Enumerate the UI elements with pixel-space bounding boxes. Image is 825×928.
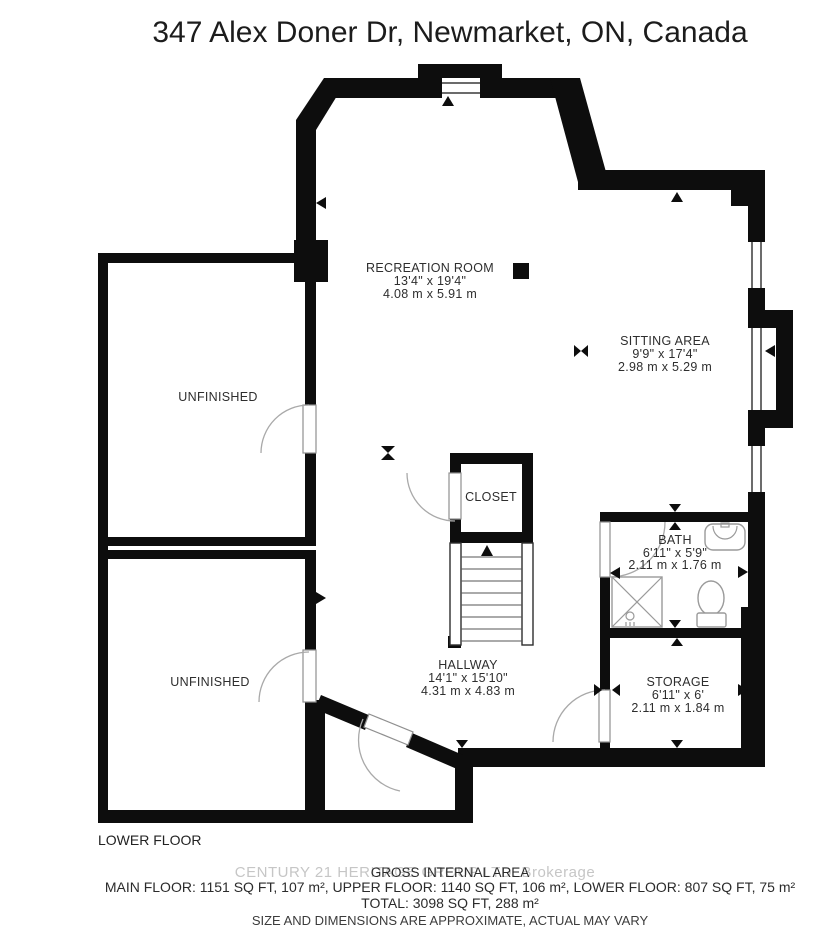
total-area-line: TOTAL: 3098 SQ FT, 288 m²: [361, 895, 539, 911]
marker-icon: [671, 638, 683, 646]
wall-segment: [305, 453, 316, 541]
door-icon-unfinished-lower: [259, 650, 316, 702]
room-dim-imperial: 14'1" x 15'10": [428, 671, 508, 685]
room-label-sitting: SITTING AREA: [620, 334, 710, 348]
room-dim-metric: 2.11 m x 1.84 m: [631, 701, 724, 715]
marker-icon: [671, 740, 683, 748]
marker-icon: [738, 566, 748, 578]
page-title: 347 Alex Doner Dr, Newmarket, ON, Canada: [152, 16, 748, 49]
bath-top-wall: [600, 512, 765, 522]
marker-icon: [669, 504, 681, 512]
marker-icon: [581, 345, 588, 357]
wall-chamfer-topright: [550, 78, 606, 182]
door-icon-unfinished-upper: [261, 405, 316, 453]
storage-left-wall: [600, 628, 610, 690]
door-icon-alcove: [359, 714, 413, 791]
room-label-unfinished-lower: UNFINISHED: [170, 675, 249, 689]
room-dim-imperial: 13'4" x 19'4": [394, 274, 466, 288]
bay-window-bottom: [748, 410, 793, 428]
window-icon: [442, 78, 480, 98]
wall-segment: [748, 428, 765, 446]
room-dim-metric: 4.31 m x 4.83 m: [421, 684, 515, 698]
floorplan-drawing: 347 Alex Doner Dr, Newmarket, ON, Canada: [0, 0, 825, 928]
wall-segment: [748, 492, 765, 515]
room-label-storage: STORAGE: [647, 675, 710, 689]
marker-icon: [316, 592, 326, 604]
room-label-bath: BATH: [658, 533, 692, 547]
dimension-markers: [316, 96, 775, 748]
door-icon-storage: [553, 690, 610, 742]
room-dim-metric: 2.11 m x 1.76 m: [628, 558, 721, 572]
shower-icon: [612, 577, 662, 627]
room-label-closet: CLOSET: [465, 490, 517, 504]
floor-areas-line: MAIN FLOOR: 1151 SQ FT, 107 m², UPPER FL…: [105, 879, 796, 895]
toilet-icon: [697, 581, 726, 627]
closet-wall: [450, 453, 533, 464]
room-divider-wall: [98, 537, 316, 546]
room-label-recreation: RECREATION ROOM: [366, 261, 494, 275]
bottom-wall-main: [458, 748, 765, 767]
diagonal-wall: [406, 733, 463, 769]
marker-icon: [765, 345, 775, 357]
bottom-wall-left: [98, 810, 473, 823]
wall-segment: [296, 120, 316, 256]
closet-wall: [522, 453, 533, 543]
marker-icon: [574, 345, 581, 357]
floor-label: LOWER FLOOR: [98, 832, 201, 848]
sink-icon: [705, 523, 745, 550]
footer: CENTURY 21 HERITAGE GROUP LTD. Brokerage…: [105, 864, 796, 928]
structural-post: [513, 263, 529, 279]
room-label-unfinished-upper: UNFINISHED: [178, 390, 257, 404]
stairs-icon: [450, 543, 533, 645]
marker-icon: [456, 740, 468, 748]
marker-icon: [669, 522, 681, 530]
window-icon: [748, 446, 765, 492]
room-labels: RECREATION ROOM 13'4" x 19'4" 4.08 m x 5…: [170, 261, 724, 715]
bay-window-icon: [748, 328, 765, 410]
wall-segment: [305, 700, 325, 810]
wall-segment: [748, 200, 765, 242]
room-label-hallway: HALLWAY: [438, 658, 498, 672]
wall-segment: [748, 288, 765, 310]
marker-icon: [669, 620, 681, 628]
marker-icon: [381, 453, 395, 460]
gross-area-title: GROSS INTERNAL AREA: [371, 865, 530, 880]
wall-segment: [748, 515, 765, 607]
wall-segment: [305, 253, 316, 405]
wall-segment: [98, 253, 316, 263]
stairs-up-arrow-icon: [481, 545, 493, 556]
marker-icon: [316, 197, 326, 209]
marker-icon: [612, 684, 620, 696]
wall-segment: [480, 78, 558, 98]
disclaimer-line: SIZE AND DIMENSIONS ARE APPROXIMATE, ACT…: [252, 913, 649, 928]
windows: [442, 78, 765, 492]
wall-segment: [305, 550, 316, 650]
floorplan-page: 347 Alex Doner Dr, Newmarket, ON, Canada: [0, 0, 825, 928]
room-dim-imperial: 6'11" x 6': [652, 688, 704, 702]
closet-wall: [450, 453, 461, 475]
room-dim-metric: 4.08 m x 5.91 m: [383, 287, 477, 301]
closet-wall: [450, 519, 461, 543]
marker-icon: [671, 192, 683, 202]
window-icon: [748, 242, 765, 288]
room-dim-metric: 2.98 m x 5.29 m: [618, 360, 712, 374]
bath-storage-divider: [600, 628, 765, 638]
room-dim-imperial: 9'9" x 17'4": [632, 347, 697, 361]
door-icon-closet: [407, 473, 461, 521]
marker-icon: [381, 446, 395, 453]
closet-wall: [450, 532, 533, 543]
room-divider-wall: [98, 550, 316, 559]
